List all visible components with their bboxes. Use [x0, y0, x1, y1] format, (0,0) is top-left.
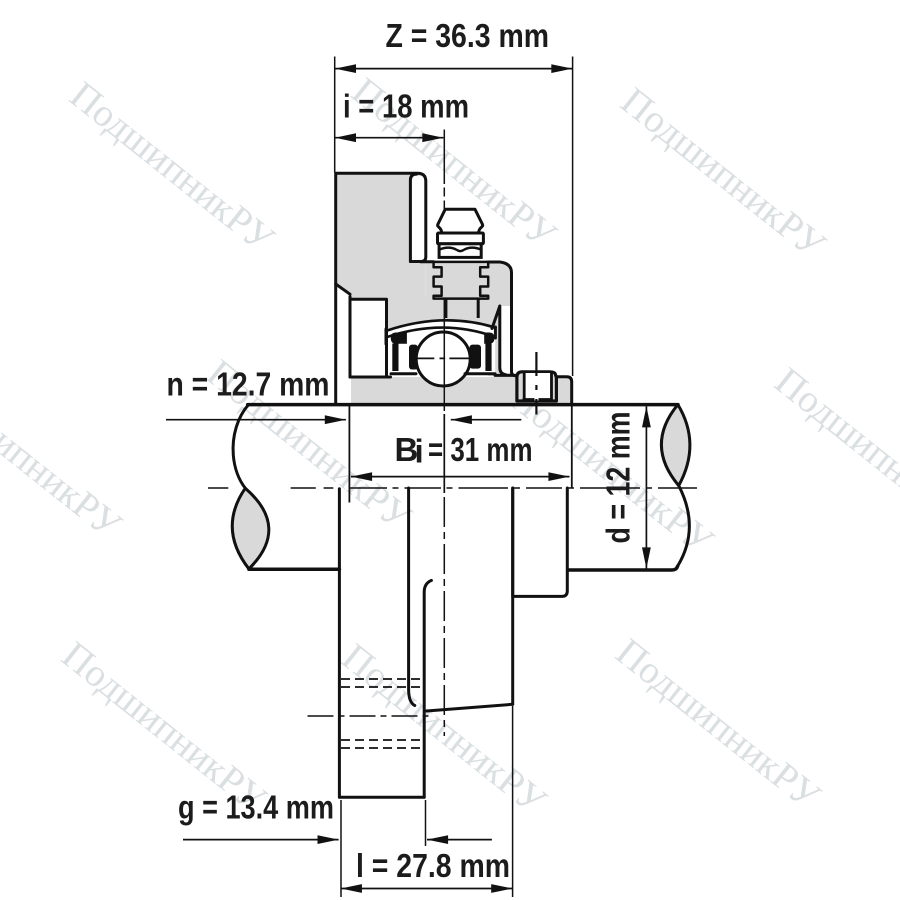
svg-text:ПодшипникРУ: ПодшипникРУ [608, 630, 829, 818]
svg-text:= 31 mm: = 31 mm [428, 431, 533, 468]
svg-text:Z = 36.3 mm: Z = 36.3 mm [386, 17, 550, 54]
svg-text:i = 18 mm: i = 18 mm [343, 88, 469, 125]
svg-text:ПодшипникРУ: ПодшипникРУ [767, 359, 900, 547]
svg-text:ПодшипникРУ: ПодшипникРУ [0, 359, 129, 547]
svg-text:ПодшипникРУ: ПодшипникРУ [62, 73, 283, 261]
svg-text:g = 13.4 mm: g = 13.4 mm [178, 789, 334, 826]
svg-text:ПодшипникРУ: ПодшипникРУ [613, 79, 834, 267]
svg-text:l = 27.8 mm: l = 27.8 mm [356, 847, 510, 884]
svg-text:i: i [415, 433, 424, 470]
svg-text:n = 12.7 mm: n = 12.7 mm [167, 366, 330, 403]
svg-text:d = 12 mm: d = 12 mm [600, 412, 637, 544]
